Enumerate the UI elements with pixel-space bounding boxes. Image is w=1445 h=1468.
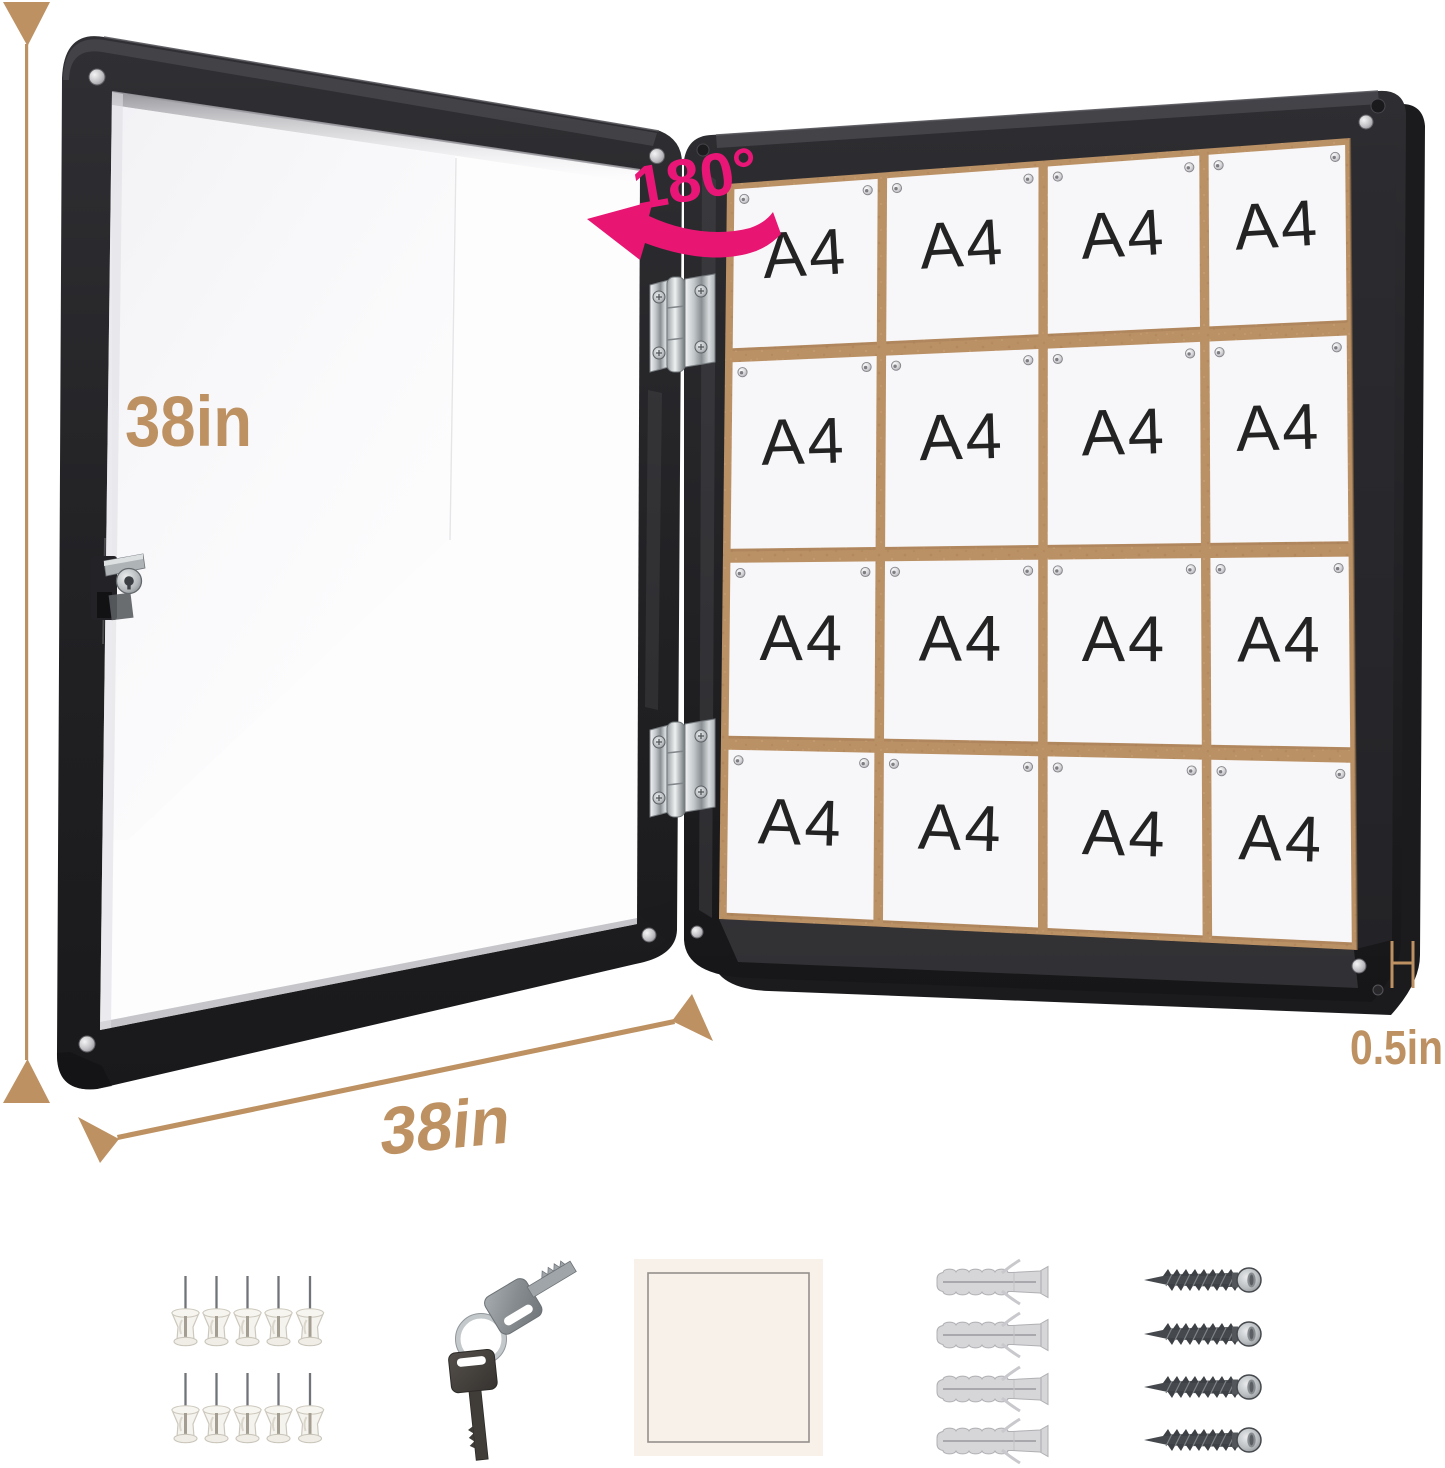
svg-text:A4: A4: [759, 601, 845, 674]
svg-text:A4: A4: [1081, 795, 1169, 871]
svg-text:A4: A4: [918, 399, 1006, 475]
svg-text:A4: A4: [919, 602, 1005, 675]
svg-text:A4: A4: [1078, 195, 1168, 273]
svg-text:A4: A4: [760, 403, 848, 479]
svg-text:38in: 38in: [125, 383, 252, 462]
svg-text:A4: A4: [1232, 186, 1322, 264]
svg-text:38in: 38in: [378, 1082, 513, 1170]
svg-text:0.5in: 0.5in: [1350, 1022, 1443, 1075]
svg-text:A4: A4: [1080, 394, 1168, 470]
svg-text:A4: A4: [1082, 602, 1168, 675]
svg-text:A4: A4: [757, 784, 845, 860]
svg-text:A4: A4: [1237, 603, 1323, 676]
svg-text:A4: A4: [1238, 800, 1326, 876]
svg-text:A4: A4: [917, 790, 1005, 866]
svg-text:A4: A4: [1235, 390, 1323, 466]
svg-text:A4: A4: [917, 205, 1007, 283]
